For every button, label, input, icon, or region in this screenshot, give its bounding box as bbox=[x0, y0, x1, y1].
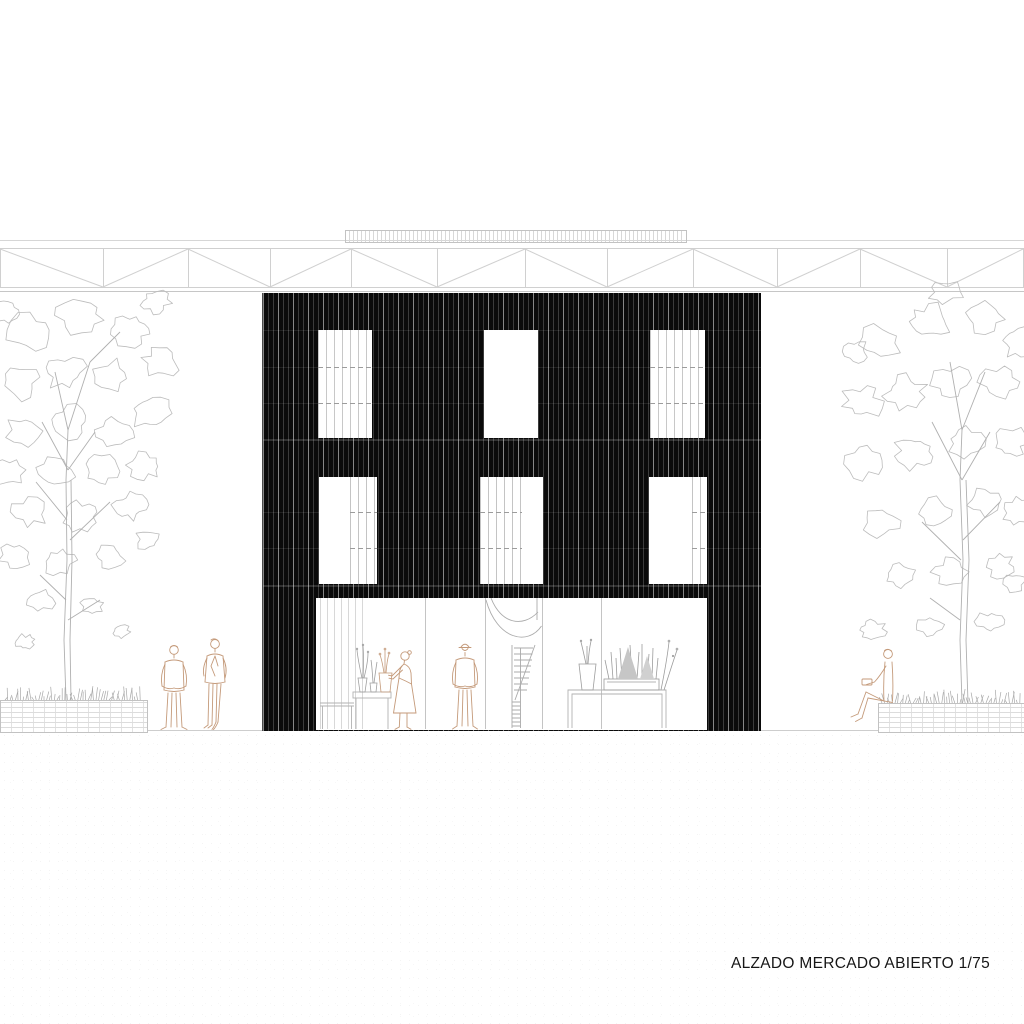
window-floor1-left bbox=[319, 477, 377, 584]
window-tick bbox=[650, 367, 705, 368]
drawing-title: ALZADO MERCADO ABIERTO 1/75 bbox=[0, 955, 990, 973]
storefront-opening bbox=[316, 598, 707, 730]
window-slat-panel bbox=[350, 477, 377, 584]
elevation-drawing-sheet: ALZADO MERCADO ABIERTO 1/75 bbox=[0, 0, 1024, 1024]
floor-line-1 bbox=[263, 585, 761, 587]
window-slat-panel bbox=[480, 477, 522, 584]
window-tick bbox=[318, 403, 372, 404]
window-tick bbox=[350, 512, 377, 513]
window-tick bbox=[480, 548, 522, 549]
figure-woman-interior bbox=[389, 651, 417, 730]
building-facade bbox=[262, 293, 761, 731]
window-tick bbox=[650, 403, 705, 404]
window-floor2-right bbox=[650, 330, 705, 438]
window-floor1-center bbox=[480, 477, 543, 584]
figure-standing-man-1 bbox=[161, 646, 187, 730]
window-tick bbox=[350, 548, 377, 549]
window-floor1-right bbox=[649, 477, 707, 584]
window-tick bbox=[480, 512, 522, 513]
ground-speckle-texture bbox=[0, 731, 1024, 1024]
window-tick bbox=[318, 367, 372, 368]
display-plants bbox=[579, 639, 678, 690]
potted-plant-tan bbox=[379, 648, 392, 692]
vases-and-stems bbox=[356, 644, 377, 692]
window-tick bbox=[692, 512, 707, 513]
spiral-staircase bbox=[486, 598, 542, 728]
storefront-interior bbox=[316, 598, 707, 730]
display-table-right bbox=[568, 690, 666, 728]
window-floor2-center bbox=[484, 330, 538, 438]
window-tick bbox=[692, 548, 707, 549]
window-floor2-left bbox=[318, 330, 372, 438]
floor-line-2 bbox=[263, 439, 761, 441]
figure-seated-person bbox=[851, 649, 893, 721]
figure-man-interior bbox=[452, 644, 477, 729]
figure-standing-man-2 bbox=[203, 639, 226, 730]
storefront-mullions bbox=[426, 598, 602, 729]
window-slat-panel bbox=[692, 477, 707, 584]
